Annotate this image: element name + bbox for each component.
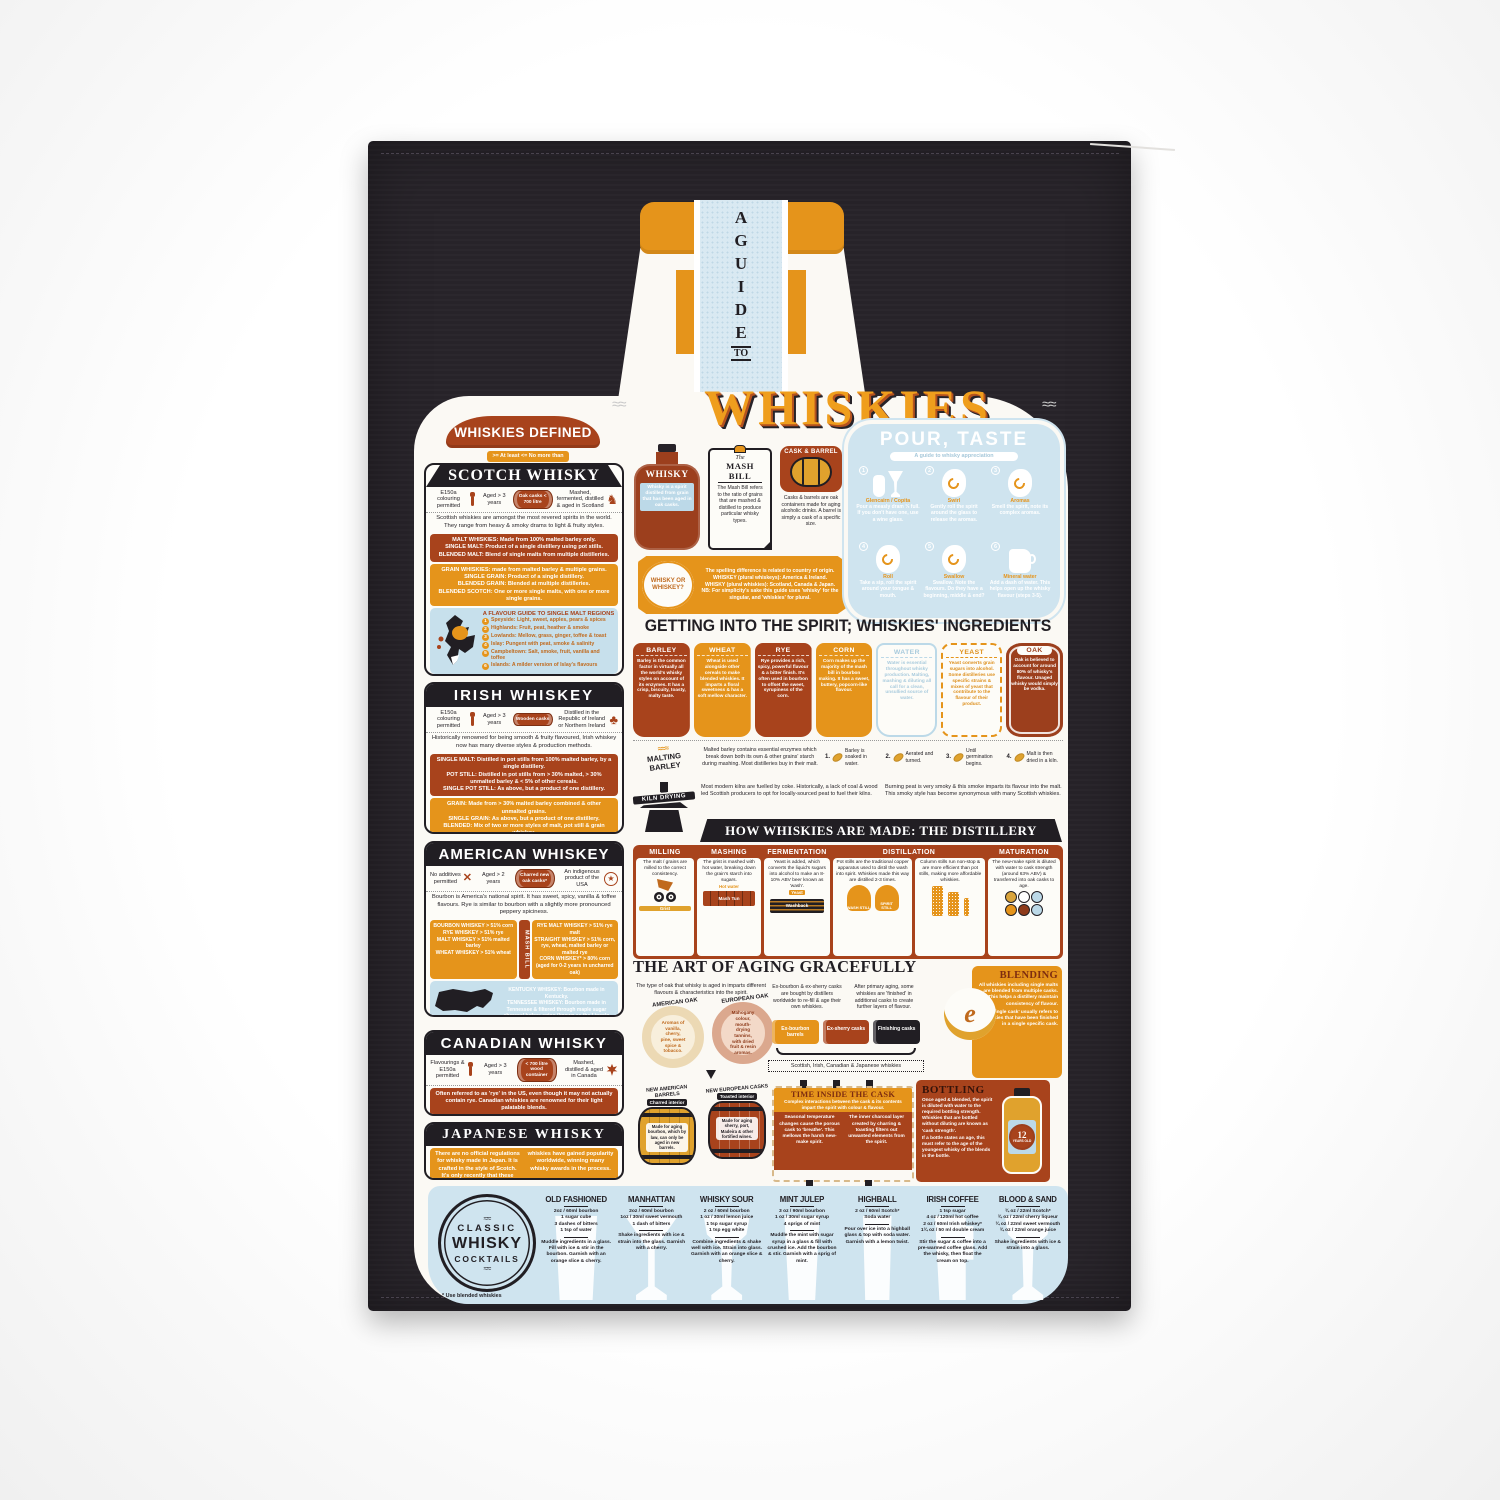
mashing-card: The grist is mashed with hot water, brea… xyxy=(697,858,761,956)
wooden-cask-icon: Wooden casks xyxy=(513,713,553,726)
sign-body: Seasonal temperature changes cause the p… xyxy=(774,1112,912,1170)
region-number: 1 xyxy=(482,618,489,625)
region-item: 6Islands: A milder version of Islay's fl… xyxy=(482,663,615,670)
sign-right-text: The inner charcoal layer created by char… xyxy=(845,1115,908,1167)
japanese-whisky-panel: JAPANESE WHISKY There are no official re… xyxy=(424,1122,624,1180)
age-statement-badge: 12 YEARS OLD xyxy=(1009,1124,1035,1150)
cask-barrel-definition: CASK & BARREL Casks & barrels are oak co… xyxy=(780,446,842,528)
rule-text: Distilled in the Republic of Ireland or … xyxy=(556,710,607,729)
crossed-dropper-icon: ✕ xyxy=(463,872,472,885)
new-american-barrel: NEW AMERICAN BARRELS Charred interior Ma… xyxy=(634,1086,700,1165)
step-text: Add a dash of water. This helps open up … xyxy=(988,580,1052,599)
sign-header: TIME INSIDE THE CASK Complex interaction… xyxy=(774,1088,912,1112)
clipboard-title: MASH BILL xyxy=(718,461,762,483)
rule-additives: No additives permitted ✕ xyxy=(430,872,472,885)
rule-text: Flavourings & E150a permitted xyxy=(430,1060,465,1079)
barrel-icon xyxy=(790,457,832,487)
blended-whiskies-note: * Use blended whiskies xyxy=(442,1293,502,1299)
irish-whiskey-panel: IRISH WHISKEY E150a colouring permitted … xyxy=(424,682,624,834)
cocktail-name: HIGHBALL xyxy=(841,1192,913,1204)
irish-rules-row: E150a colouring permitted Aged > 3 years… xyxy=(426,707,622,733)
barrel-text: Made for aging bourbon, which by law, ca… xyxy=(646,1123,688,1152)
new-european-cask: NEW EUROPEAN CASKS Toasted interior Made… xyxy=(704,1086,770,1159)
canadian-rules-row: Flavourings & E150a permitted Aged > 3 y… xyxy=(426,1055,622,1086)
grain-icon xyxy=(1013,751,1026,763)
sign-intro: Complex interactions between the cask & … xyxy=(778,1099,908,1110)
oak-cask-icon: Oak casks < 700 litre xyxy=(513,490,553,509)
blending-title: BLENDING xyxy=(978,970,1058,981)
scotch-regions-box: A FLAVOUR GUIDE TO SINGLE MALT REGIONS 1… xyxy=(430,608,618,674)
guide-to-text: TO xyxy=(731,346,751,361)
distillation-column: DISTILLATION Pot stills are the traditio… xyxy=(833,848,985,956)
rule-text: Mashed, distilled & aged in Canada xyxy=(564,1060,604,1079)
spirit-still-icon: SPIRIT STILL xyxy=(875,885,899,911)
rule-text: Aged > 3 years xyxy=(481,1063,509,1076)
charred-cask-icon: Charred new oak casks* xyxy=(515,869,555,888)
step-number: 3 xyxy=(991,466,1000,475)
kiln-pagoda-icon: KILN DRYING xyxy=(633,780,695,832)
step-number: 5 xyxy=(925,542,934,551)
cask-badge-title: CASK & BARREL xyxy=(783,449,839,455)
irish-malt-box: SINGLE MALT: Distilled in pot stills fro… xyxy=(430,754,618,796)
oak-cask-end: OAK Oak is believed to account for aroun… xyxy=(1006,643,1063,737)
cocktail-blood-and-sand: BLOOD & SAND ¾ oz / 22ml Scotch* ¾ oz / … xyxy=(992,1192,1064,1302)
lion-rampant-icon: ♞ xyxy=(606,493,618,506)
ingredient-name: OAK xyxy=(1017,646,1052,655)
step-text: Gently roll the spirit around the glass … xyxy=(922,504,986,523)
cocktail-method: Muddle ingredients in a glass. Fill with… xyxy=(540,1240,612,1266)
region-text: Speyside: Light, sweet, apples, pears & … xyxy=(491,618,606,624)
symbol-key: >= At least <= No more than xyxy=(487,451,569,462)
european-oak: EUROPEAN OAK Mahogany colour, mouth-dryi… xyxy=(712,996,778,1064)
american-states-box: KENTUCKY WHISKEY: Bourbon made in Kentuc… xyxy=(430,981,618,1017)
european-oak-ring: Mahogany colour, mouth-drying tannins, w… xyxy=(712,1002,774,1064)
american-intro: Bourbon is America's national spirit. It… xyxy=(426,892,622,918)
rule-age: Aged > 3 years xyxy=(481,1063,509,1076)
usa-map xyxy=(433,984,495,1017)
ingredient-text: Oak is believed to account for around 80… xyxy=(1009,655,1060,692)
rule-age: Aged > 3 years xyxy=(479,713,509,726)
ingredients-row: BARLEY Barley is the common factor in vi… xyxy=(633,643,1063,737)
milling-card: The malt / grains are milled to the corr… xyxy=(636,858,694,956)
japanese-panel-title: JAPANESE WHISKY xyxy=(426,1124,622,1146)
pour-taste-panel: POUR, TASTE A guide to whisky appreciati… xyxy=(848,424,1060,618)
scotch-whisky-panel: SCOTCH WHISKY E150a colouring permitted … xyxy=(424,463,624,676)
cocktail-manhattan: MANHATTAN 2oz / 60ml bourbon 1oz / 30ml … xyxy=(615,1192,687,1302)
malting-step-number: 4. xyxy=(1007,754,1012,761)
ingredient-text: Water is essential throughout whisky pro… xyxy=(881,658,932,701)
regions-list: A FLAVOUR GUIDE TO SINGLE MALT REGIONS 1… xyxy=(482,611,615,671)
ingredient-name: RYE xyxy=(758,645,809,656)
ingredient-text: Wheat is used alongside other cereals to… xyxy=(697,656,748,699)
malting-step-3: 3. Until germination begins. xyxy=(946,748,1003,766)
mash-bill-definition: The Mash Bill refers to the ratio of gra… xyxy=(710,485,770,525)
malting-barley-row: ≈≈≈ MALTING BARLEY Malted barley contain… xyxy=(633,740,1063,771)
rule-origin: Distilled in the Republic of Ireland or … xyxy=(556,710,618,729)
wash-still-icon: WASH STILL xyxy=(847,885,871,911)
mash-bill-right: RYE MALT WHISKEY > 51% rye malt STRAIGHT… xyxy=(532,920,619,979)
pour-steps-grid: 1 Glencairn / Copita Pour a measly dram … xyxy=(848,463,1060,617)
roundel-cocktails: COCKTAILS xyxy=(454,1254,519,1264)
grain-hopper-icon xyxy=(657,879,673,891)
maturation-column: MATURATION The new-make spirit is dilute… xyxy=(988,848,1060,956)
scotland-map xyxy=(433,611,479,667)
grain-icon xyxy=(952,751,965,763)
cocktail-irish-coffee: IRISH COFFEE 1 tsp sugar 4 oz / 120ml ho… xyxy=(916,1192,988,1302)
process-text: Yeast is added, which converts the liqui… xyxy=(768,860,826,889)
cocktail-method: Shake ingredients with ice & strain into… xyxy=(992,1240,1064,1253)
maple-leaf-icon xyxy=(606,1064,618,1076)
squiggle-decoration: ≈≈ xyxy=(1042,396,1054,413)
ingredients-title: GETTING INTO THE SPIRIT; WHISKIES' INGRE… xyxy=(642,617,1055,636)
rule-age: Aged > 2 years xyxy=(479,872,507,885)
grist-label: Grist xyxy=(639,906,691,912)
neck-label-band: A GUIDE TO xyxy=(694,200,788,392)
region-text: Highlands: Fruit, peat, heather & smoke xyxy=(491,626,589,632)
brace-icon xyxy=(776,1048,916,1055)
pot-still-card: Pot stills are the traditional copper ap… xyxy=(833,858,912,956)
distillery-band: MILLING The malt / grains are milled to … xyxy=(633,845,1063,959)
refill-casks-text: Ex-bourbon & ex-sherry casks are bought … xyxy=(772,984,842,1011)
cocktail-name: OLD FASHIONED xyxy=(540,1192,612,1204)
barrel-text: Made for aging sherry, port, Madeira & o… xyxy=(716,1117,758,1140)
pour-step-4: 4 Roll Take a sip, roll the spirit aroun… xyxy=(856,541,920,615)
whiskies-defined-banner: WHISKIES DEFINED xyxy=(446,416,600,448)
rule-text: Aged > 2 years xyxy=(479,872,507,885)
american-oak: AMERICAN OAK Aromas of vanilla, cherry, … xyxy=(642,1000,708,1068)
region-number: 2 xyxy=(482,626,489,633)
mini-bottle-cap xyxy=(658,444,676,452)
roundel-classic: CLASSIC xyxy=(457,1223,516,1234)
cocktail-ingredients: 3 oz / 90ml bourbon 1 oz / 30ml sugar sy… xyxy=(766,1209,838,1228)
mash-tun-icon: Mash Tun xyxy=(703,891,755,906)
cocktail-ingredients: 2oz / 60ml bourbon 1oz / 30ml sweet verm… xyxy=(615,1209,687,1228)
grain-icon xyxy=(831,751,844,763)
american-oak-ring: Aromas of vanilla, cherry, pine, sweet s… xyxy=(642,1006,704,1068)
process-text: The new-make spirit is diluted with wate… xyxy=(992,860,1055,889)
usa-star-icon: ★ xyxy=(604,872,618,886)
canadian-panel-title: CANADIAN WHISKY xyxy=(426,1032,622,1055)
rule-text: E150a colouring permitted xyxy=(430,490,467,509)
ex-bourbon-chip: Ex-bourbon barrels xyxy=(772,1020,819,1044)
distillery-title: HOW WHISKIES ARE MADE: THE DISTILLERY xyxy=(700,819,1062,842)
guide-vertical-text: A GUIDE xyxy=(733,206,750,344)
water-jug: WATER Water is essential throughout whis… xyxy=(876,643,937,737)
process-name: DISTILLATION xyxy=(833,848,985,858)
american-rules-row: No additives permitted ✕ Aged > 2 years … xyxy=(426,866,622,892)
spelling-explanation: The spelling difference is related to co… xyxy=(698,568,842,602)
american-barrel-icon: Made for aging bourbon, which by law, ca… xyxy=(638,1107,696,1165)
shamrock-icon: ♣ xyxy=(609,713,618,726)
process-name: FERMENTATION xyxy=(764,848,830,858)
malting-text: Malted barley contains essential enzymes… xyxy=(699,747,821,768)
malting-label-text: MALTING BARLEY xyxy=(647,751,682,773)
ingredient-text: Yeast converts grain sugars into alcohol… xyxy=(946,658,997,707)
cask-chips-row: Ex-bourbon barrels Ex-sherry casks Finis… xyxy=(772,1020,920,1044)
mash-bill-left: BOURBON WHISKEY > 51% corn RYE WHISKEY >… xyxy=(430,920,517,979)
milling-column: MILLING The malt / grains are milled to … xyxy=(636,848,694,956)
rye-sack: RYE Rye provides a rich, spicy, powerful… xyxy=(755,643,812,737)
finishing-casks-text: After primary aging, some whiskies are '… xyxy=(848,984,920,1011)
dropper-icon xyxy=(469,712,476,727)
cocktail-highball: HIGHBALL 2 oz / 60ml Scotch* Soda water … xyxy=(841,1192,913,1302)
region-item: 2Highlands: Fruit, peat, heather & smoke xyxy=(482,626,615,633)
ingredient-text: Rye provides a rich, spicy, powerful fla… xyxy=(758,656,809,699)
cocktail-name: MINT JULEP xyxy=(766,1192,838,1204)
ingredient-name: BARLEY xyxy=(636,645,687,656)
scotch-grain-box: GRAIN WHISKIES: made from malted barley … xyxy=(430,564,618,606)
rule-colouring: E150a colouring permitted xyxy=(430,490,476,509)
irish-panel-title: IRISH WHISKEY xyxy=(426,684,622,707)
step-text: Smell the spirit, note its complex aroma… xyxy=(988,504,1052,517)
rule-text: No additives permitted xyxy=(430,872,461,885)
process-name: MASHING xyxy=(697,848,761,858)
aging-title: THE ART OF AGING GRACEFULLY xyxy=(633,957,959,977)
sign-left-text: Seasonal temperature changes cause the p… xyxy=(778,1115,841,1167)
toasted-interior-pill: Toasted interior xyxy=(717,1093,757,1100)
cocktail-name: MANHATTAN xyxy=(615,1192,687,1204)
whiskies-brace-note: Scottish, Irish, Canadian & Japanese whi… xyxy=(768,1060,924,1072)
states-text: KENTUCKY WHISKEY: Bourbon made in Kentuc… xyxy=(498,984,615,1017)
cocktail-name: WHISKY SOUR xyxy=(691,1192,763,1204)
pour-step-3: 3 Aromas Smell the spirit, note its comp… xyxy=(988,465,1052,539)
cocktail-ingredients: 1 tsp sugar 4 oz / 120ml hot coffee 2 oz… xyxy=(916,1209,988,1235)
rule-text: An indigenous product of the USA xyxy=(562,869,602,888)
malting-step-4: 4. Malt is then dried in a kiln. xyxy=(1007,751,1064,763)
process-text: The grist is mashed with hot water, brea… xyxy=(702,860,755,883)
malting-step-text: Barley is soaked in water. xyxy=(845,748,881,766)
cocktail-name: BLOOD & SAND xyxy=(992,1192,1064,1204)
rule-text: Aged > 3 years xyxy=(479,713,509,726)
cocktail-name: IRISH COFFEE xyxy=(916,1192,988,1204)
whisky-definition-text: Whisky is a spirit distilled from grain … xyxy=(640,483,694,511)
scotch-malt-box: MALT WHISKIES: Made from 100% malted bar… xyxy=(430,534,618,562)
bottle-label: 12 YEARS OLD xyxy=(1008,1120,1036,1154)
dropper-icon xyxy=(467,1062,474,1077)
hot-water-label: Hot water xyxy=(700,884,758,890)
region-number: 5 xyxy=(482,650,489,657)
grain-icon xyxy=(892,751,905,763)
cocktail-ingredients: 2oz / 60ml bourbon 1 sugar cube 3 dashes… xyxy=(540,1209,612,1235)
rule-text: E150a colouring permitted xyxy=(430,710,467,729)
rule-origin: An indigenous product of the USA ★ xyxy=(562,869,618,888)
mashing-column: MASHING The grist is mashed with hot wat… xyxy=(697,848,761,956)
cocktail-method: Muddle the mint with sugar syrup in a gl… xyxy=(766,1233,838,1265)
region-item: 1Speyside: Light, sweet, apples, pears &… xyxy=(482,618,615,625)
rule-flavourings: Flavourings & E150a permitted xyxy=(430,1060,474,1079)
region-text: Islands: A milder version of Islay's fla… xyxy=(491,663,597,669)
fermentation-card: Yeast is added, which converts the liqui… xyxy=(764,858,830,956)
hem-stitching-top xyxy=(381,153,1119,154)
region-number: 6 xyxy=(482,663,489,670)
barley-sack: BARLEY Barley is the common factor in vi… xyxy=(633,643,690,737)
cocktail-method: Pour over ice into a highball glass & to… xyxy=(841,1227,913,1246)
canadian-note-box: Often referred to as 'rye' in the US, ev… xyxy=(430,1088,618,1116)
down-arrow-icon xyxy=(706,1070,716,1079)
pour-step-5: 5 Swallow Swallow. Note the flavours. Do… xyxy=(922,541,986,615)
maturation-card: The new-make spirit is diluted with wate… xyxy=(988,858,1060,956)
yeast-card: YEAST Yeast converts grain sugars into a… xyxy=(941,643,1002,737)
malting-step-number: 3. xyxy=(946,754,951,761)
american-whiskey-panel: AMERICAN WHISKEY No additives permitted … xyxy=(424,841,624,1017)
age-years-old: YEARS OLD xyxy=(1013,1140,1032,1144)
rule-text: Mashed, fermented, distilled & aged in S… xyxy=(556,490,604,509)
washback-icon: Washback xyxy=(770,899,824,913)
cocktail-whisky-sour: WHISKY SOUR 2 oz / 60ml bourbon 1 oz / 3… xyxy=(691,1192,763,1302)
ingredient-text: Barley is the common factor in virtually… xyxy=(636,656,687,699)
malting-step-text: Malt is then dried in a kiln. xyxy=(1027,751,1063,763)
ingredient-text: Corn makes up the majority of the mash b… xyxy=(819,656,870,693)
cocktail-old-fashioned: OLD FASHIONED 2oz / 60ml bourbon 1 sugar… xyxy=(540,1192,612,1302)
rule-origin: Mashed, fermented, distilled & aged in S… xyxy=(556,490,618,509)
region-text: Lowlands: Mellow, grass, ginger, toffee … xyxy=(491,634,606,640)
whisky-or-whiskey-banner: WHISKY OR WHISKEY? The spelling differen… xyxy=(638,556,846,614)
column-stills-icon xyxy=(918,886,982,916)
rule-origin: Mashed, distilled & aged in Canada xyxy=(564,1060,618,1079)
cocktail-method: Stir the sugar & coffee into a pre-warme… xyxy=(916,1240,988,1266)
malting-step-number: 2. xyxy=(886,754,891,761)
region-item: 4Islay: Pungent with peat, smoke & salin… xyxy=(482,642,615,649)
mash-bill-label: MASH BILL xyxy=(519,920,530,979)
ex-sherry-chip: Ex-sherry casks xyxy=(823,1020,870,1044)
ingredient-name: WATER xyxy=(881,647,932,658)
scotch-intro: Scottish whiskies are amongst the most r… xyxy=(426,513,622,532)
malting-step-2: 2. Aerated and turned. xyxy=(886,751,943,763)
corn-sack: CORN Corn makes up the majority of the m… xyxy=(816,643,873,737)
process-text: Column stills run non-stop & are more ef… xyxy=(919,860,981,883)
roundel-wave-decoration: ≈≈ xyxy=(484,1264,491,1273)
column-still-card: Column stills run non-stop & are more ef… xyxy=(915,858,985,956)
cocktail-mint-julep: MINT JULEP 3 oz / 90ml bourbon 1 oz / 30… xyxy=(766,1192,838,1302)
region-text: Islay: Pungent with peat, smoke & salini… xyxy=(491,642,594,648)
time-inside-cask-sign: TIME INSIDE THE CASK Complex interaction… xyxy=(772,1086,914,1182)
malting-step-text: Until germination begins. xyxy=(966,748,1002,766)
region-number: 3 xyxy=(482,634,489,641)
irish-intro: Historically renowned for being smooth &… xyxy=(426,733,622,752)
step-text: Pour a measly dram ⅓ full. If you don't … xyxy=(856,504,920,523)
malting-step-text: Aerated and turned. xyxy=(906,751,942,763)
aged-bottle-icon: 12 YEARS OLD xyxy=(1002,1096,1042,1174)
whisky-definition-bottle: WHISKY Whisky is a spirit distilled from… xyxy=(634,444,700,554)
mash-bill-clipboard: The MASH BILL The Mash Bill refers to th… xyxy=(708,448,772,550)
gears-icon xyxy=(639,891,691,906)
process-text: The malt / grains are milled to the corr… xyxy=(643,860,687,877)
process-name: MILLING xyxy=(636,848,694,858)
cocktail-method: Shake ingredients with ice & strain into… xyxy=(615,1233,687,1252)
european-cask-icon: Made for aging sherry, port, Madeira & o… xyxy=(708,1101,766,1159)
malting-label: ≈≈≈ MALTING BARLEY xyxy=(632,740,697,774)
region-number: 4 xyxy=(482,642,489,649)
rule-age: Aged > 3 years xyxy=(479,493,509,506)
malting-step-number: 1. xyxy=(825,754,830,761)
cocktail-method: Combine ingredients & shake well with ic… xyxy=(691,1240,763,1266)
rule-text: Aged > 3 years xyxy=(479,493,509,506)
cocktail-columns: OLD FASHIONED 2oz / 60ml bourbon 1 sugar… xyxy=(540,1192,1064,1302)
roundel-wave-decoration: ≈≈ xyxy=(484,1214,491,1223)
mini-bottle-body: WHISKY Whisky is a spirit distilled from… xyxy=(634,464,700,550)
page-fold-icon xyxy=(762,540,772,550)
whisky-or-whiskey-badge: WHISKY OR WHISKEY? xyxy=(642,561,694,609)
bottling-text-1: Once aged & blended, the spirit is dilut… xyxy=(922,1097,994,1134)
roundel-whisky: WHISKY xyxy=(452,1235,522,1253)
step-number: 6 xyxy=(991,542,1000,551)
sign-title: TIME INSIDE THE CASK xyxy=(778,1090,908,1099)
step-text: Take a sip, roll the spirit around your … xyxy=(856,580,920,599)
pour-step-1: 1 Glencairn / Copita Pour a measly dram … xyxy=(856,465,920,539)
american-panel-title: AMERICAN WHISKEY xyxy=(426,843,622,866)
mini-bottle-title: WHISKY xyxy=(634,470,700,480)
bottling-text-2: If a bottle states an age, this must ref… xyxy=(922,1135,994,1159)
region-item: 3Lowlands: Mellow, grass, ginger, toffee… xyxy=(482,634,615,641)
cask-definition-text: Casks & barrels are oak containers made … xyxy=(780,495,842,528)
japanese-note-box: There are no official regulations for wh… xyxy=(430,1148,618,1180)
process-name: MATURATION xyxy=(988,848,1060,858)
finishing-chip: Finishing casks xyxy=(873,1020,920,1044)
cask-badge: CASK & BARREL xyxy=(780,446,842,492)
ingredient-name: CORN xyxy=(819,645,870,656)
step-text: Swallow. Note the flavours. Do they have… xyxy=(922,580,986,599)
classic-whisky-cocktails-roundel: ≈≈ CLASSIC WHISKY COCKTAILS ≈≈ xyxy=(438,1194,536,1292)
wood-container-icon: < 700 litre wood container xyxy=(517,1058,557,1082)
step-number: 2 xyxy=(925,466,934,475)
pour-step-2: 2 Swirl Gently roll the spirit around th… xyxy=(922,465,986,539)
stacked-casks-icon xyxy=(991,891,1057,917)
irish-grain-box: GRAIN: Made from > 30% malted barley com… xyxy=(430,798,618,834)
step-number: 1 xyxy=(859,466,868,475)
cocktail-ingredients: 2 oz / 60ml Scotch* Soda water xyxy=(841,1209,913,1222)
charred-interior-pill: Charred interior xyxy=(647,1099,688,1106)
ingredient-name: YEAST xyxy=(946,647,997,658)
squiggle-decoration: ≈≈ xyxy=(612,396,624,413)
yeast-chip: Yeast xyxy=(789,890,804,896)
clipboard-clip-icon xyxy=(734,445,746,453)
scotch-rules-row: E150a colouring permitted Aged > 3 years… xyxy=(426,487,622,513)
mini-bottle-neck xyxy=(656,452,678,464)
pour-taste-title: POUR, TASTE xyxy=(848,424,1060,451)
malting-step-1: 1. Barley is soaked in water. xyxy=(825,748,882,766)
pour-taste-subtitle: A guide to whisky appreciation xyxy=(890,452,1018,461)
region-item: 5Campbeltown: Salt, smoke, fruit, vanill… xyxy=(482,650,615,662)
cocktail-ingredients: 2 oz / 60ml bourbon 1 oz / 30ml lemon ju… xyxy=(691,1209,763,1235)
scotch-panel-title: SCOTCH WHISKY xyxy=(426,465,622,487)
cocktail-ingredients: ¾ oz / 22ml Scotch* ¾ oz / 22ml cherry l… xyxy=(992,1209,1064,1235)
fermentation-column: FERMENTATION Yeast is added, which conve… xyxy=(764,848,830,956)
bottling-box: BOTTLING Once aged & blended, the spirit… xyxy=(916,1080,1050,1182)
step-number: 4 xyxy=(859,542,868,551)
american-mash-bill: BOURBON WHISKEY > 51% corn RYE WHISKEY >… xyxy=(430,920,618,979)
canadian-whisky-panel: CANADIAN WHISKY Flavourings & E150a perm… xyxy=(424,1030,624,1116)
pour-step-6: 6 Mineral water Add a dash of water. Thi… xyxy=(988,541,1052,615)
rule-colouring: E150a colouring permitted xyxy=(430,710,476,729)
blending-glass-icon: e xyxy=(944,988,996,1040)
pot-stills-icon: WASH STILL SPIRIT STILL xyxy=(836,885,909,911)
wheat-sack: WHEAT Wheat is used alongside other cere… xyxy=(694,643,751,737)
ingredient-name: WHEAT xyxy=(697,645,748,656)
process-text: Pot stills are the traditional copper ap… xyxy=(836,860,909,883)
region-text: Campbeltown: Salt, smoke, fruit, vanilla… xyxy=(491,650,615,662)
dropper-icon xyxy=(469,492,476,507)
